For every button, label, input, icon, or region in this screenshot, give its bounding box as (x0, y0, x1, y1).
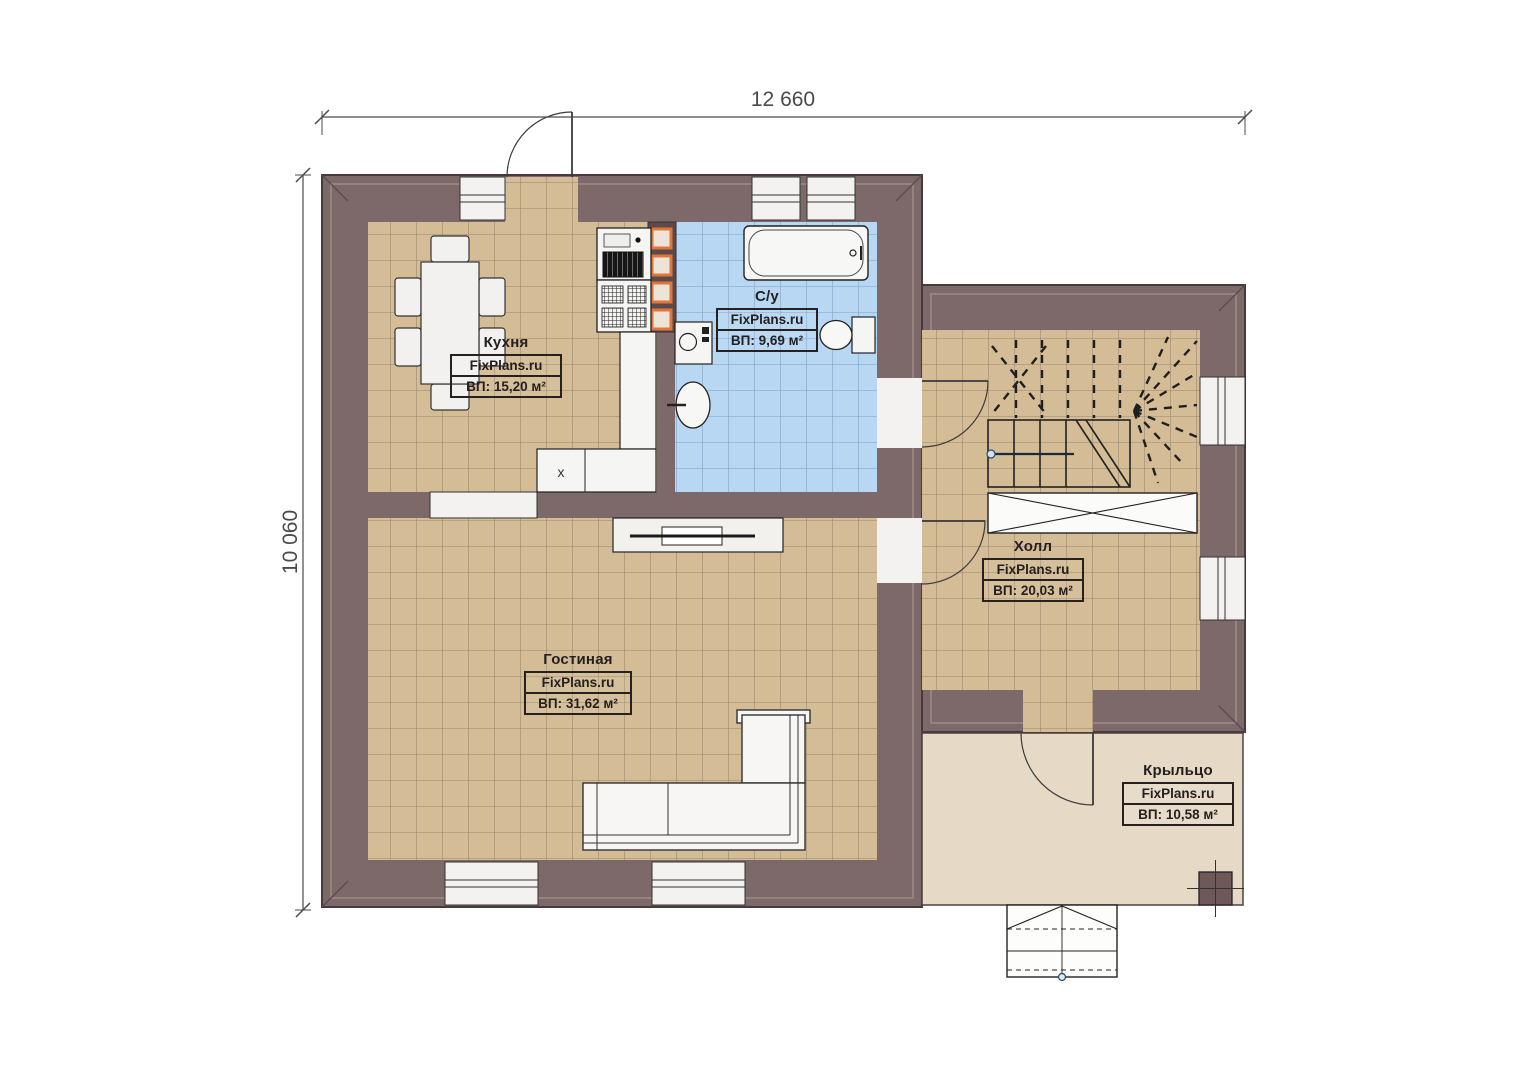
room-title-hall: Холл (982, 538, 1084, 555)
entry-door-recess-floor (505, 177, 578, 222)
room-title-porch: Крыльцо (1122, 762, 1234, 779)
room-label-bathroom: С/у FixPlans.ru ВП: 9,69 м² (716, 288, 818, 352)
room-brand-kitchen: FixPlans.ru (452, 356, 560, 377)
room-label-living: Гостиная FixPlans.ru ВП: 31,62 м² (524, 651, 632, 715)
understairs-closet (988, 493, 1197, 533)
window-top-bathroom-left (752, 177, 800, 220)
room-brand-living: FixPlans.ru (526, 673, 630, 694)
room-area-living: ВП: 31,62 м² (526, 694, 630, 713)
floor-plan-drawing: x (0, 0, 1528, 1080)
kitchen-sink-unit (597, 228, 651, 280)
porch-door-recess-floor (1023, 690, 1093, 732)
room-area-hall: ВП: 20,03 м² (984, 581, 1082, 600)
room-brand-hall: FixPlans.ru (984, 560, 1082, 581)
room-info-box-porch: FixPlans.ru ВП: 10,58 м² (1122, 782, 1234, 826)
room-area-porch: ВП: 10,58 м² (1124, 805, 1232, 824)
room-area-bathroom: ВП: 9,69 м² (718, 331, 816, 350)
floor-plan-canvas: x (0, 0, 1528, 1080)
window-right-upper (1200, 377, 1245, 445)
room-label-kitchen: Кухня FixPlans.ru ВП: 15,20 м² (450, 334, 562, 398)
stove-icon (597, 280, 651, 332)
room-area-kitchen: ВП: 15,20 м² (452, 377, 560, 396)
dimension-width: 12 660 (315, 88, 1252, 135)
entry-door-top (507, 112, 572, 177)
washing-machine-icon (675, 322, 712, 364)
cabinet-mark: x (558, 464, 565, 480)
room-title-kitchen: Кухня (450, 334, 562, 351)
kitchen-living-passage (430, 492, 537, 518)
window-right-lower (1200, 557, 1245, 620)
room-title-bathroom: С/у (716, 288, 818, 305)
room-info-box-living: FixPlans.ru ВП: 31,62 м² (524, 671, 632, 715)
window-bottom-left (445, 862, 538, 905)
room-brand-porch: FixPlans.ru (1124, 784, 1232, 805)
room-brand-bathroom: FixPlans.ru (718, 310, 816, 331)
porch-steps (1007, 905, 1117, 981)
room-info-box-hall: FixPlans.ru ВП: 20,03 м² (982, 558, 1084, 602)
window-top-kitchen (460, 177, 505, 220)
dimension-height: 10 060 (279, 168, 311, 917)
room-info-box-bathroom: FixPlans.ru ВП: 9,69 м² (716, 308, 818, 352)
room-title-living: Гостиная (524, 651, 632, 668)
room-label-hall: Холл FixPlans.ru ВП: 20,03 м² (982, 538, 1084, 602)
room-label-porch: Крыльцо FixPlans.ru ВП: 10,58 м² (1122, 762, 1234, 826)
room-info-box-kitchen: FixPlans.ru ВП: 15,20 м² (450, 354, 562, 398)
dimension-height-label: 10 060 (279, 510, 302, 574)
dimension-width-label: 12 660 (751, 88, 815, 111)
window-top-bathroom-right (807, 177, 855, 220)
ventilation-block (648, 222, 676, 332)
tv-console (613, 518, 783, 552)
bathtub-icon (744, 226, 868, 280)
window-bottom-right (652, 862, 745, 905)
